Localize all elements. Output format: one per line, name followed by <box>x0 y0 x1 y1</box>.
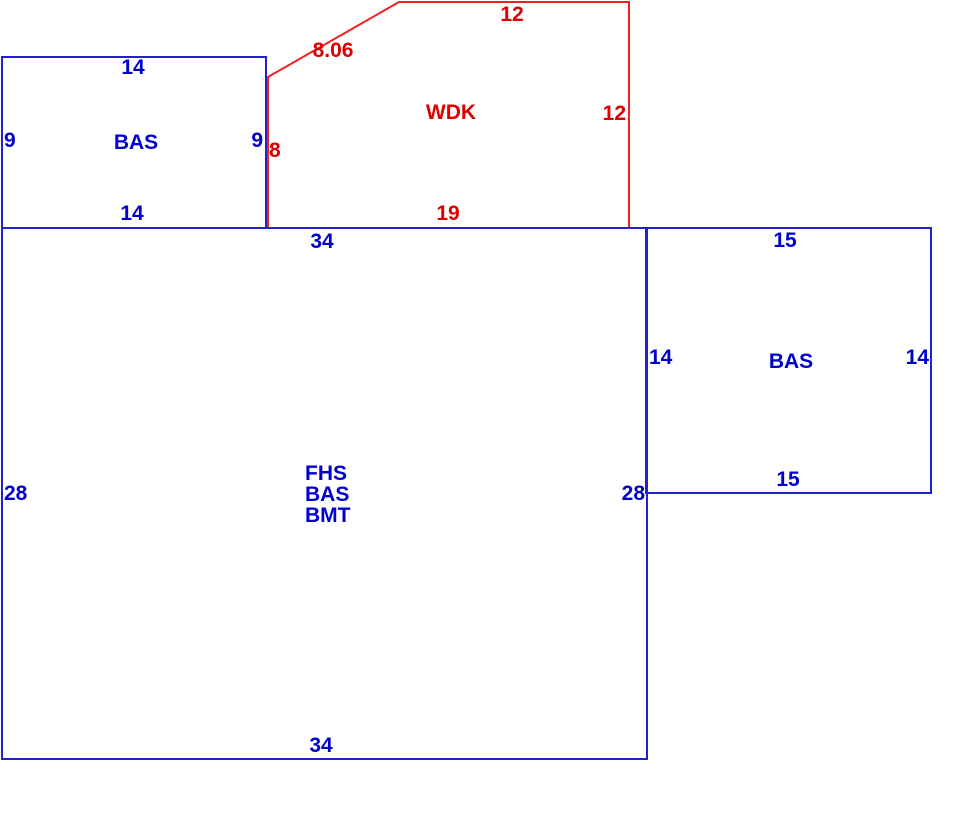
dim-label-bottom: 15 <box>776 470 799 490</box>
dim-label-right: 28 <box>622 484 645 504</box>
area-code-line: BMT <box>305 505 351 526</box>
area-code-label: WDK <box>426 103 476 123</box>
dim-label-left: 28 <box>4 484 27 504</box>
area-code-stack: FHS BAS BMT <box>305 463 351 526</box>
area-code-label: BAS <box>769 352 813 372</box>
dim-label-top: 14 <box>121 58 144 78</box>
dim-label-right: 12 <box>603 104 626 124</box>
dim-label-diagonal: 8.06 <box>313 41 354 61</box>
dim-label-bottom: 14 <box>120 204 143 224</box>
dim-label-bottom: 19 <box>436 204 459 224</box>
property-sketch: 14 9 BAS 9 14 8.06 12 WDK 12 8 19 34 28 … <box>0 0 980 819</box>
dim-label-right: 14 <box>906 348 929 368</box>
dim-label-top: 15 <box>773 231 796 251</box>
dim-label-left: 8 <box>269 141 281 161</box>
dim-label-top: 12 <box>500 5 523 25</box>
dim-label-top: 34 <box>310 232 333 252</box>
area-code-line: FHS <box>305 463 351 484</box>
area-code-label: BAS <box>114 133 158 153</box>
dim-label-left: 9 <box>4 131 16 151</box>
area-code-line: BAS <box>305 484 351 505</box>
dim-label-bottom: 34 <box>309 736 332 756</box>
sketch-outlines <box>0 0 980 819</box>
dim-label-left: 14 <box>649 348 672 368</box>
dim-label-right: 9 <box>251 131 263 151</box>
